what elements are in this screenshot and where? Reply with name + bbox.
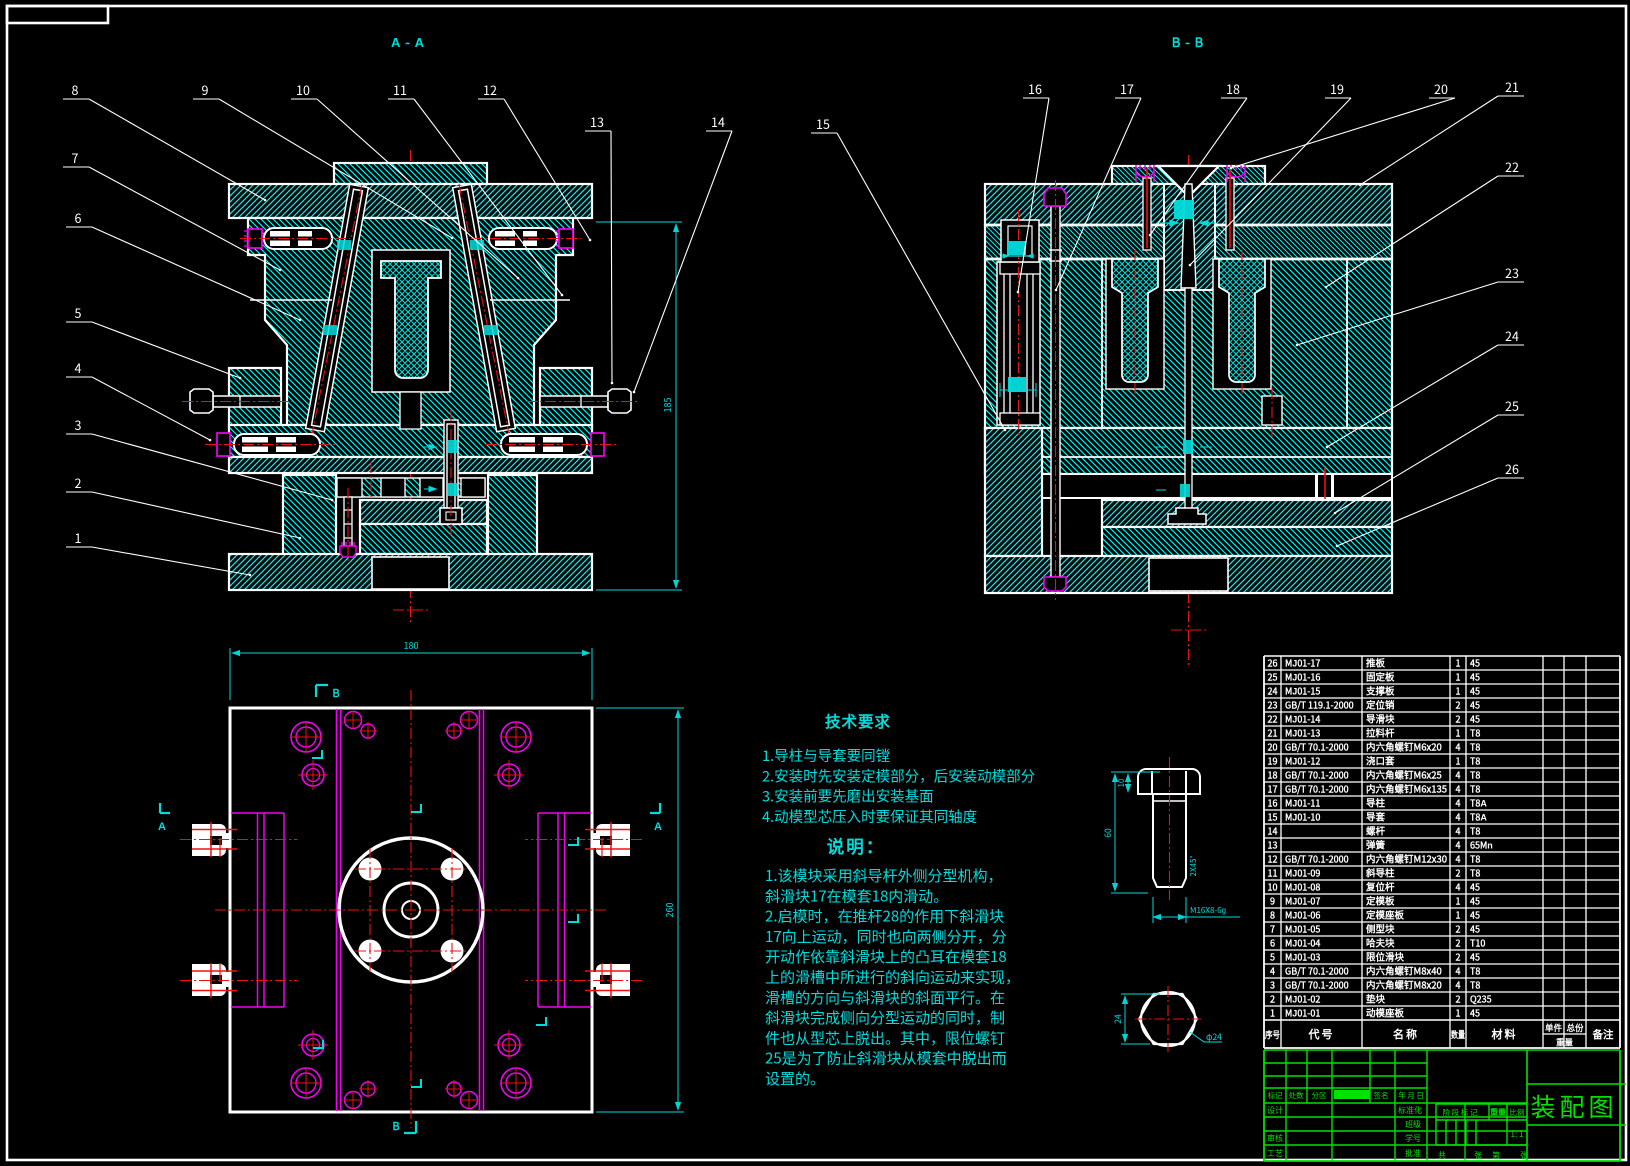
svg-text:26: 26: [1505, 459, 1519, 478]
svg-text:1.导柱与导套要同镗: 1.导柱与导套要同镗: [762, 745, 890, 766]
svg-text:T8: T8: [1470, 965, 1480, 978]
svg-text:标记: 标记: [1268, 1090, 1284, 1101]
svg-text:比例: 比例: [1510, 1107, 1525, 1118]
svg-text:MJ01-02: MJ01-02: [1285, 993, 1320, 1006]
svg-text:45: 45: [1469, 1007, 1480, 1020]
svg-text:MJ01-08: MJ01-08: [1285, 881, 1320, 894]
svg-text:18: 18: [1226, 79, 1240, 98]
svg-text:9: 9: [202, 80, 209, 99]
svg-text:总份: 总份: [1566, 1022, 1584, 1034]
svg-text:MJ01-17: MJ01-17: [1285, 657, 1320, 670]
svg-text:设置的。: 设置的。: [765, 1068, 825, 1089]
svg-text:1: 1: [1270, 1007, 1275, 1020]
svg-text:2: 2: [1456, 951, 1461, 964]
svg-text:张: 张: [1520, 1150, 1528, 1161]
svg-text:17: 17: [1120, 79, 1134, 98]
svg-text:2: 2: [75, 473, 82, 492]
svg-text:浇口套: 浇口套: [1366, 754, 1395, 768]
svg-text:内六角螺钉M6x20: 内六角螺钉M6x20: [1366, 740, 1442, 754]
svg-text:8: 8: [1270, 909, 1275, 922]
svg-text:21: 21: [1268, 727, 1278, 740]
svg-text:4: 4: [1455, 825, 1461, 838]
svg-text:支撑板: 支撑板: [1365, 684, 1395, 698]
svg-text:重量: 重量: [1490, 1107, 1506, 1118]
svg-text:GB/T 70.1-2000: GB/T 70.1-2000: [1285, 979, 1349, 992]
svg-text:说明：: 说明：: [827, 834, 886, 859]
svg-text:7: 7: [1270, 923, 1275, 936]
svg-text:45: 45: [1469, 895, 1480, 908]
svg-text:1: 1: [1456, 909, 1461, 922]
svg-text:开动作依靠斜滑块上的凸耳在模套18: 开动作依靠斜滑块上的凸耳在模套18: [765, 946, 1007, 967]
svg-text:定模座板: 定模座板: [1365, 908, 1405, 922]
svg-text:MJ01-10: MJ01-10: [1285, 811, 1320, 824]
svg-text:MJ01-12: MJ01-12: [1285, 755, 1320, 768]
svg-text:260: 260: [663, 903, 676, 918]
svg-text:24: 24: [1112, 1014, 1124, 1024]
svg-text:分区: 分区: [1312, 1090, 1328, 1101]
svg-text:22: 22: [1268, 713, 1278, 726]
svg-text:4: 4: [1455, 783, 1461, 796]
svg-text:导套: 导套: [1366, 810, 1386, 824]
svg-text:GB/T 70.1-2000: GB/T 70.1-2000: [1285, 741, 1349, 754]
svg-text:5: 5: [1269, 951, 1275, 964]
svg-text:动模座板: 动模座板: [1366, 1006, 1405, 1020]
svg-text:1: 1: [1456, 671, 1461, 684]
svg-text:T8: T8: [1470, 853, 1480, 866]
svg-text:T8: T8: [1470, 755, 1480, 768]
svg-text:1: 1: [1456, 657, 1461, 670]
svg-text:垫块: 垫块: [1366, 992, 1386, 1006]
svg-text:装配图: 装配图: [1530, 1088, 1617, 1124]
svg-text:2.启模时，在推杆28的作用下斜滑块: 2.启模时，在推杆28的作用下斜滑块: [765, 906, 1004, 927]
svg-text:T8: T8: [1470, 741, 1480, 754]
svg-text:24: 24: [1505, 326, 1519, 345]
svg-text:张: 张: [1474, 1150, 1482, 1161]
svg-text:学号: 学号: [1405, 1133, 1421, 1144]
svg-text:数量: 数量: [1451, 1028, 1465, 1041]
svg-text:45: 45: [1469, 881, 1480, 894]
svg-text:2X45°: 2X45°: [1188, 856, 1199, 877]
svg-text:4: 4: [75, 358, 82, 377]
svg-text:45: 45: [1469, 951, 1480, 964]
svg-text:3: 3: [75, 415, 82, 434]
svg-text:班级: 班级: [1405, 1119, 1421, 1130]
svg-text:MJ01-04: MJ01-04: [1285, 937, 1320, 950]
svg-text:限位滑块: 限位滑块: [1366, 950, 1405, 964]
svg-text:4: 4: [1455, 853, 1461, 866]
svg-text:6: 6: [75, 208, 82, 227]
svg-text:处数: 处数: [1289, 1090, 1305, 1101]
svg-text:签名: 签名: [1374, 1090, 1389, 1101]
svg-text:Q235: Q235: [1470, 993, 1492, 1006]
svg-text:B: B: [392, 1118, 399, 1134]
svg-text:1: 1: [1456, 895, 1461, 908]
svg-text:φ24: φ24: [1206, 1031, 1222, 1043]
svg-text:23: 23: [1268, 699, 1278, 712]
svg-text:MJ01-01: MJ01-01: [1285, 1007, 1320, 1020]
svg-text:阶 段 标 记: 阶 段 标 记: [1442, 1107, 1478, 1118]
svg-text:斜滑块完成侧向分型运动的同时，制: 斜滑块完成侧向分型运动的同时，制: [765, 1007, 1005, 1028]
svg-text:1: 1: [1456, 1007, 1461, 1020]
svg-text:10: 10: [296, 80, 310, 99]
svg-text:滑槽的方向与斜滑块的斜面平行。在: 滑槽的方向与斜滑块的斜面平行。在: [765, 987, 1005, 1008]
svg-text:A: A: [158, 818, 166, 834]
svg-text:1: 1: [1456, 755, 1461, 768]
svg-text:设计: 设计: [1267, 1105, 1283, 1116]
svg-text:MJ01-16: MJ01-16: [1285, 671, 1320, 684]
svg-text:第: 第: [1492, 1150, 1500, 1161]
svg-text:内六角螺钉M12x30: 内六角螺钉M12x30: [1366, 852, 1447, 866]
svg-text:MJ01-05: MJ01-05: [1285, 923, 1320, 936]
svg-text:6: 6: [1270, 937, 1275, 950]
svg-text:1: 1: [1456, 727, 1461, 740]
svg-text:4: 4: [1455, 979, 1461, 992]
svg-text:技术要求: 技术要求: [825, 710, 891, 732]
svg-text:件也从型芯上脱出。其中，限位螺钉: 件也从型芯上脱出。其中，限位螺钉: [765, 1027, 1005, 1048]
svg-text:MJ01-07: MJ01-07: [1285, 895, 1320, 908]
svg-text:45: 45: [1469, 699, 1480, 712]
svg-text:25: 25: [1268, 671, 1278, 684]
svg-text:T8A: T8A: [1470, 797, 1487, 810]
svg-text:1.该模块采用斜导杆外侧分型机构，: 1.该模块采用斜导杆外侧分型机构，: [765, 865, 1003, 886]
svg-text:斜滑块17在模套18内滑动。: 斜滑块17在模套18内滑动。: [765, 885, 948, 906]
svg-text:内六角螺钉M6x25: 内六角螺钉M6x25: [1366, 768, 1442, 782]
svg-text:4: 4: [1455, 811, 1461, 824]
svg-text:13: 13: [590, 112, 604, 131]
svg-text:T8: T8: [1470, 867, 1480, 880]
svg-text:60: 60: [1102, 828, 1114, 838]
svg-text:重量: 重量: [1556, 1037, 1574, 1049]
svg-text:螺杆: 螺杆: [1366, 824, 1386, 838]
svg-text:2: 2: [1456, 713, 1461, 726]
svg-text:工艺: 工艺: [1267, 1148, 1283, 1159]
svg-text:代号: 代号: [1308, 1026, 1335, 1042]
svg-text:9: 9: [1270, 895, 1275, 908]
svg-text:2: 2: [1456, 937, 1461, 950]
svg-text:16: 16: [1268, 797, 1278, 810]
svg-text:序号: 序号: [1265, 1028, 1280, 1041]
svg-text:MJ01-13: MJ01-13: [1285, 727, 1320, 740]
svg-text:23: 23: [1505, 263, 1519, 282]
svg-text:4: 4: [1455, 965, 1461, 978]
svg-text:4: 4: [1455, 839, 1461, 852]
svg-text:A - A: A - A: [391, 32, 425, 51]
svg-text:MJ01-06: MJ01-06: [1285, 909, 1320, 922]
svg-text:185: 185: [661, 398, 674, 413]
svg-text:T8: T8: [1470, 727, 1480, 740]
svg-text:MJ01-14: MJ01-14: [1285, 713, 1320, 726]
svg-text:2.安装时先安装定模部分，后安装动模部分: 2.安装时先安装定模部分，后安装动模部分: [762, 765, 1035, 786]
svg-text:16: 16: [1028, 79, 1042, 98]
svg-text:4: 4: [1269, 965, 1275, 978]
svg-text:10: 10: [1116, 778, 1127, 787]
svg-text:单件: 单件: [1545, 1022, 1563, 1034]
svg-text:名称: 名称: [1393, 1026, 1419, 1042]
svg-text:2: 2: [1270, 993, 1275, 1006]
svg-text:1: 1: [75, 528, 82, 547]
svg-text:18: 18: [1268, 769, 1278, 782]
svg-text:8: 8: [72, 80, 79, 99]
svg-text:45: 45: [1469, 923, 1480, 936]
svg-text:22: 22: [1505, 157, 1519, 176]
svg-text:2: 2: [1456, 923, 1461, 936]
svg-text:审核: 审核: [1267, 1133, 1283, 1144]
svg-text:17: 17: [1268, 783, 1278, 796]
svg-text:内六角螺钉M8x40: 内六角螺钉M8x40: [1366, 964, 1442, 978]
svg-text:45: 45: [1469, 657, 1480, 670]
svg-text:10: 10: [1268, 881, 1278, 894]
svg-text:推板: 推板: [1366, 656, 1386, 670]
svg-text:定位销: 定位销: [1365, 698, 1395, 712]
svg-text:4.动模型芯压入时要保证其同轴度: 4.动模型芯压入时要保证其同轴度: [762, 806, 977, 827]
svg-text:导柱: 导柱: [1366, 796, 1386, 810]
svg-text:T8: T8: [1470, 783, 1480, 796]
svg-text:1: 1: 1: 1: [1511, 1129, 1524, 1140]
svg-text:内六角螺钉M6x135: 内六角螺钉M6x135: [1366, 782, 1447, 796]
svg-text:MJ01-09: MJ01-09: [1285, 867, 1320, 880]
svg-text:材料: 材料: [1492, 1026, 1518, 1042]
svg-text:弹簧: 弹簧: [1366, 838, 1386, 852]
svg-text:65Mn: 65Mn: [1470, 839, 1493, 852]
svg-text:导滑块: 导滑块: [1366, 712, 1395, 726]
svg-text:T8A: T8A: [1470, 811, 1487, 824]
svg-text:45: 45: [1469, 685, 1480, 698]
svg-text:固定板: 固定板: [1366, 670, 1395, 684]
svg-text:批准: 批准: [1405, 1148, 1421, 1159]
svg-text:T8: T8: [1470, 979, 1480, 992]
svg-text:13: 13: [1268, 839, 1278, 852]
svg-text:4: 4: [1455, 797, 1461, 810]
svg-text:17向上运动，同时也向两侧分开，分: 17向上运动，同时也向两侧分开，分: [765, 926, 1007, 947]
svg-text:19: 19: [1330, 79, 1344, 98]
svg-text:年 月 日: 年 月 日: [1398, 1090, 1424, 1101]
svg-text:4: 4: [1455, 741, 1461, 754]
svg-text:180: 180: [404, 639, 419, 652]
svg-text:20: 20: [1434, 79, 1448, 98]
svg-text:25: 25: [1505, 396, 1519, 415]
svg-text:3: 3: [1270, 979, 1275, 992]
svg-text:20: 20: [1268, 741, 1278, 754]
svg-text:T8: T8: [1470, 769, 1480, 782]
svg-text:T8: T8: [1470, 825, 1480, 838]
svg-text:M16X8-6g: M16X8-6g: [1190, 905, 1226, 916]
svg-text:斜导柱: 斜导柱: [1365, 866, 1395, 880]
svg-text:哈夫块: 哈夫块: [1366, 936, 1395, 950]
svg-text:24: 24: [1268, 685, 1278, 698]
svg-text:GB/T 70.1-2000: GB/T 70.1-2000: [1285, 783, 1349, 796]
svg-text:7: 7: [72, 148, 79, 167]
svg-text:2: 2: [1456, 993, 1461, 1006]
svg-text:共: 共: [1438, 1150, 1446, 1161]
svg-text:15: 15: [816, 114, 830, 133]
svg-text:25是为了防止斜滑块从模套中脱出而: 25是为了防止斜滑块从模套中脱出而: [765, 1048, 1007, 1069]
svg-text:19: 19: [1268, 755, 1278, 768]
svg-text:B: B: [332, 685, 339, 701]
svg-text:定模板: 定模板: [1365, 894, 1395, 908]
svg-text:45: 45: [1469, 909, 1480, 922]
svg-text:标准化: 标准化: [1398, 1105, 1422, 1116]
svg-text:内六角螺钉M8x20: 内六角螺钉M8x20: [1366, 978, 1442, 992]
svg-text:MJ01-15: MJ01-15: [1285, 685, 1320, 698]
svg-text:26: 26: [1268, 657, 1278, 670]
svg-text:侧型块: 侧型块: [1366, 922, 1395, 936]
svg-text:2: 2: [1456, 867, 1461, 880]
svg-text:45: 45: [1469, 713, 1480, 726]
svg-text:B - B: B - B: [1172, 32, 1204, 51]
svg-text:T10: T10: [1470, 937, 1485, 950]
svg-text:2: 2: [1456, 699, 1461, 712]
svg-text:MJ01-11: MJ01-11: [1285, 797, 1320, 810]
svg-text:1: 1: [1456, 685, 1461, 698]
svg-text:12: 12: [1268, 853, 1278, 866]
svg-text:GB/T 70.1-2000: GB/T 70.1-2000: [1285, 853, 1349, 866]
svg-text:45: 45: [1469, 671, 1480, 684]
svg-text:4: 4: [1455, 881, 1461, 894]
svg-text:11: 11: [1268, 867, 1278, 880]
svg-text:GB/T 119.1-2000: GB/T 119.1-2000: [1285, 699, 1354, 712]
svg-text:5: 5: [75, 303, 82, 322]
svg-text:4: 4: [1455, 769, 1461, 782]
svg-text:11: 11: [393, 80, 407, 99]
svg-text:3.安装前要先磨出安装基面: 3.安装前要先磨出安装基面: [762, 786, 934, 807]
svg-text:GB/T 70.1-2000: GB/T 70.1-2000: [1285, 769, 1349, 782]
svg-text:拉料杆: 拉料杆: [1366, 726, 1395, 740]
svg-text:GB/T 70.1-2000: GB/T 70.1-2000: [1285, 965, 1349, 978]
svg-text:12: 12: [483, 80, 497, 99]
svg-text:14: 14: [711, 112, 725, 131]
svg-text:复位杆: 复位杆: [1365, 880, 1395, 894]
svg-text:MJ01-03: MJ01-03: [1285, 951, 1320, 964]
svg-text:15: 15: [1268, 811, 1278, 824]
svg-text:A: A: [654, 818, 662, 834]
svg-text:备注: 备注: [1592, 1027, 1615, 1042]
svg-text:上的滑槽中所进行的斜向运动来实现，: 上的滑槽中所进行的斜向运动来实现，: [765, 967, 1020, 988]
svg-text:21: 21: [1505, 77, 1519, 96]
svg-text:14: 14: [1268, 825, 1278, 838]
